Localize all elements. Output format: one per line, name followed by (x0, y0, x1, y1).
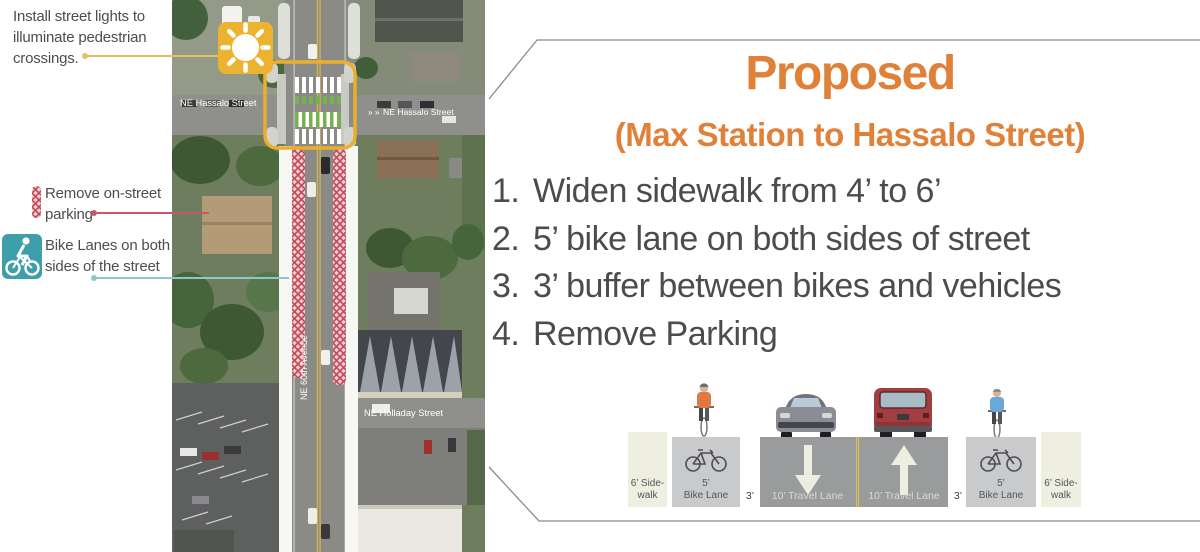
bike-lane-label: 5’Bike Lane (672, 478, 740, 502)
leader-line-street-lights (86, 55, 218, 57)
sidewalk-label: 6’ Side-walk (628, 478, 667, 502)
buffer-label: 3’ (950, 490, 966, 502)
leader-line-bike-lanes (97, 277, 289, 279)
xsection-bike-lane: 5’Bike Lane (966, 437, 1036, 507)
leader-dot (91, 275, 97, 281)
up-arrow-icon (891, 445, 917, 495)
street-label-holladay: NE Holladay Street (364, 408, 443, 418)
travel-lane-label: 10’ Travel Lane (760, 490, 855, 502)
list-item-text: 5’ bike lane on both sides of street (533, 216, 1030, 264)
list-item-number: 1. (492, 168, 533, 216)
list-item: 4. Remove Parking (492, 311, 1192, 359)
page-title: Proposed (505, 46, 1195, 101)
xsection-sidewalk: 6’ Side-walk (628, 432, 667, 507)
proposal-list: 1. Widen sidewalk from 4’ to 6’ 2. 5’ bi… (492, 168, 1192, 358)
bike-lane-badge-icon (2, 234, 42, 279)
list-item: 2. 5’ bike lane on both sides of street (492, 216, 1192, 264)
annotation-street-lights: Install street lights to illuminate pede… (13, 6, 173, 69)
leader-line-remove-parking (97, 212, 209, 214)
van-illustration (871, 386, 935, 438)
buffer-label: 3’ (742, 490, 758, 502)
travel-lane-label: 10’ Travel Lane (860, 490, 948, 502)
chevrons-icon: » » (368, 108, 380, 117)
map-terrain (172, 0, 485, 552)
list-item-number: 2. (492, 216, 533, 264)
bicycle-icon (683, 447, 729, 473)
yellow-line (856, 437, 858, 507)
xsection-travel-lane: 10’ Travel Lane (860, 437, 948, 507)
list-item: 3. 3’ buffer between bikes and vehicles (492, 263, 1192, 311)
bike-lane-label: 5’Bike Lane (966, 478, 1036, 502)
street-light-icon (218, 22, 273, 74)
xsection-bike-lane: 5’Bike Lane (672, 437, 740, 507)
list-item-text: Remove Parking (533, 311, 777, 359)
leader-dot (82, 53, 88, 59)
parking-hatch-swatch-icon (32, 186, 41, 218)
down-arrow-icon (795, 445, 821, 495)
car-illustration (775, 392, 837, 438)
cyclist-illustration (980, 387, 1014, 439)
list-item-number: 4. (492, 311, 533, 359)
street-label-60th-avenue: NE 60th Avenue (299, 335, 309, 400)
sidewalk-label: 6’ Side-walk (1041, 478, 1081, 502)
bicycle-icon (978, 447, 1024, 473)
list-item-text: Widen sidewalk from 4’ to 6’ (533, 168, 941, 216)
aerial-map: NE Hassalo Street » » NE Hassalo Street … (172, 0, 485, 552)
page-subtitle: (Max Station to Hassalo Street) (505, 116, 1195, 154)
street-label-hassalo-right: NE Hassalo Street (383, 107, 454, 117)
xsection-travel-lane: 10’ Travel Lane (760, 437, 855, 507)
list-item-text: 3’ buffer between bikes and vehicles (533, 263, 1061, 311)
annotation-remove-parking: Remove on-street parking (45, 183, 177, 225)
leader-dot (91, 210, 97, 216)
cyclist-illustration (686, 381, 722, 437)
list-item-number: 3. (492, 263, 533, 311)
list-item: 1. Widen sidewalk from 4’ to 6’ (492, 168, 1192, 216)
annotation-bike-lanes: Bike Lanes on both sides of the street (45, 235, 183, 277)
street-label-hassalo-left: NE Hassalo Street (180, 98, 257, 108)
slide: NE Hassalo Street » » NE Hassalo Street … (0, 0, 1200, 552)
xsection-sidewalk: 6’ Side-walk (1041, 432, 1081, 507)
remove-parking-hatch-strip (333, 149, 346, 385)
